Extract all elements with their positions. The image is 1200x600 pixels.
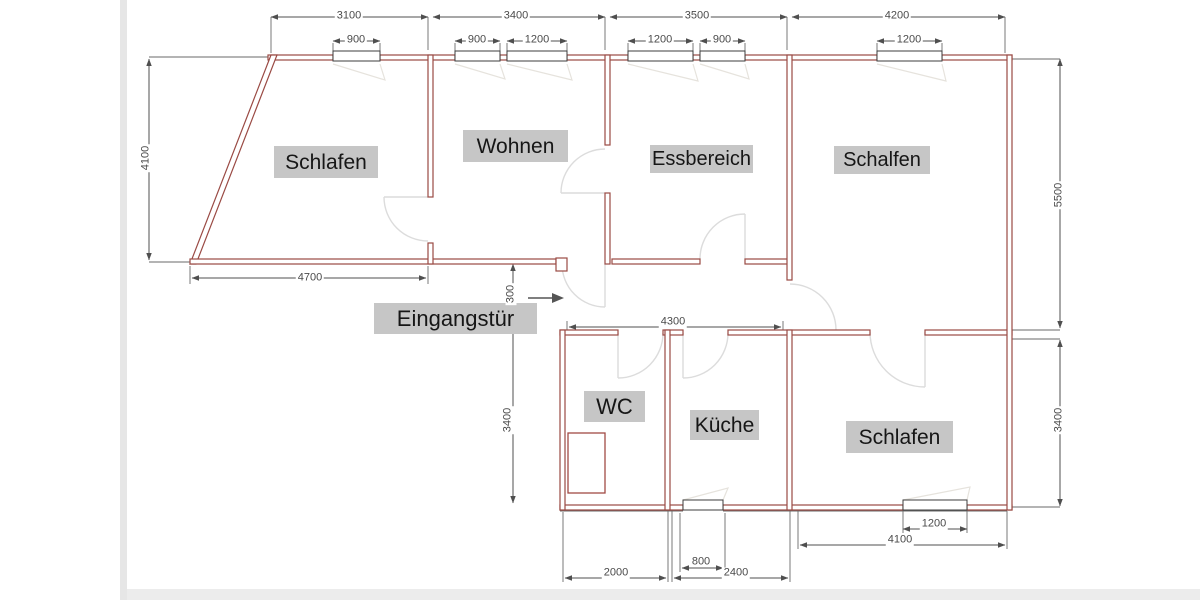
door-arc (870, 332, 925, 387)
dim-window-essbereich-2: 900 (711, 35, 733, 46)
dim-entrance-offset: 300 (506, 283, 517, 305)
dim-window-wohnen-2: 1200 (523, 35, 551, 46)
dim-schlafen-b-width: 4100 (886, 535, 914, 546)
door-arc (384, 197, 428, 241)
page-edge-left (120, 0, 127, 600)
window (877, 51, 942, 61)
dim-top-schalfen: 4200 (883, 11, 911, 22)
dim-top-wohnen: 3400 (502, 11, 530, 22)
dim-right-lower-height: 3400 (1054, 406, 1065, 434)
dim-window-schalfen: 1200 (895, 35, 923, 46)
dim-corridor-width: 4300 (659, 317, 687, 328)
dim-schlafen-bottom-width: 4700 (296, 273, 324, 284)
dim-left-height: 4100 (141, 144, 152, 172)
dim-wc-kueche-height: 3400 (503, 406, 514, 434)
dim-schlafen-b-window: 1200 (920, 519, 948, 530)
door-arc (562, 264, 605, 307)
door-arc (700, 214, 745, 259)
floor-plan-drawing (0, 0, 1200, 600)
window (455, 51, 500, 61)
window (507, 51, 567, 61)
entrance-post (556, 258, 567, 271)
room-label-essbereich: Essbereich (650, 145, 753, 173)
diagonal-wall (190, 55, 277, 264)
wc-fixture (568, 433, 605, 493)
dim-kueche-window: 800 (690, 557, 712, 568)
entrance-label: Eingangstür (374, 303, 537, 334)
dim-right-upper-height: 5500 (1054, 181, 1065, 209)
dim-window-wohnen-1: 900 (466, 35, 488, 46)
window (903, 500, 967, 510)
door-arcs (384, 149, 925, 387)
dim-kueche-width: 2400 (722, 568, 750, 579)
window (628, 51, 693, 61)
door-arc (683, 333, 728, 378)
entrance-direction-arrow (528, 293, 564, 303)
room-label-wohnen: Wohnen (463, 130, 568, 162)
dim-wc-width: 2000 (602, 568, 630, 579)
dim-top-essbereich: 3500 (683, 11, 711, 22)
room-label-wc: WC (584, 391, 645, 422)
room-label-schalfen-right: Schalfen (834, 146, 930, 174)
window (683, 500, 723, 510)
floor-plan-page: Schlafen Wohnen Essbereich Schalfen Eing… (0, 0, 1200, 600)
dim-top-schlafen: 3100 (335, 11, 363, 22)
room-label-schlafen-bottom: Schlafen (846, 421, 953, 453)
door-arc (618, 333, 663, 378)
door-arc (790, 284, 836, 332)
room-label-kueche: Küche (690, 410, 759, 440)
window (700, 51, 745, 61)
window (333, 51, 380, 61)
page-edge-bottom (127, 589, 1200, 600)
dim-window-schlafen: 900 (345, 35, 367, 46)
room-label-schlafen-left: Schlafen (274, 146, 378, 178)
dim-window-essbereich-1: 1200 (646, 35, 674, 46)
